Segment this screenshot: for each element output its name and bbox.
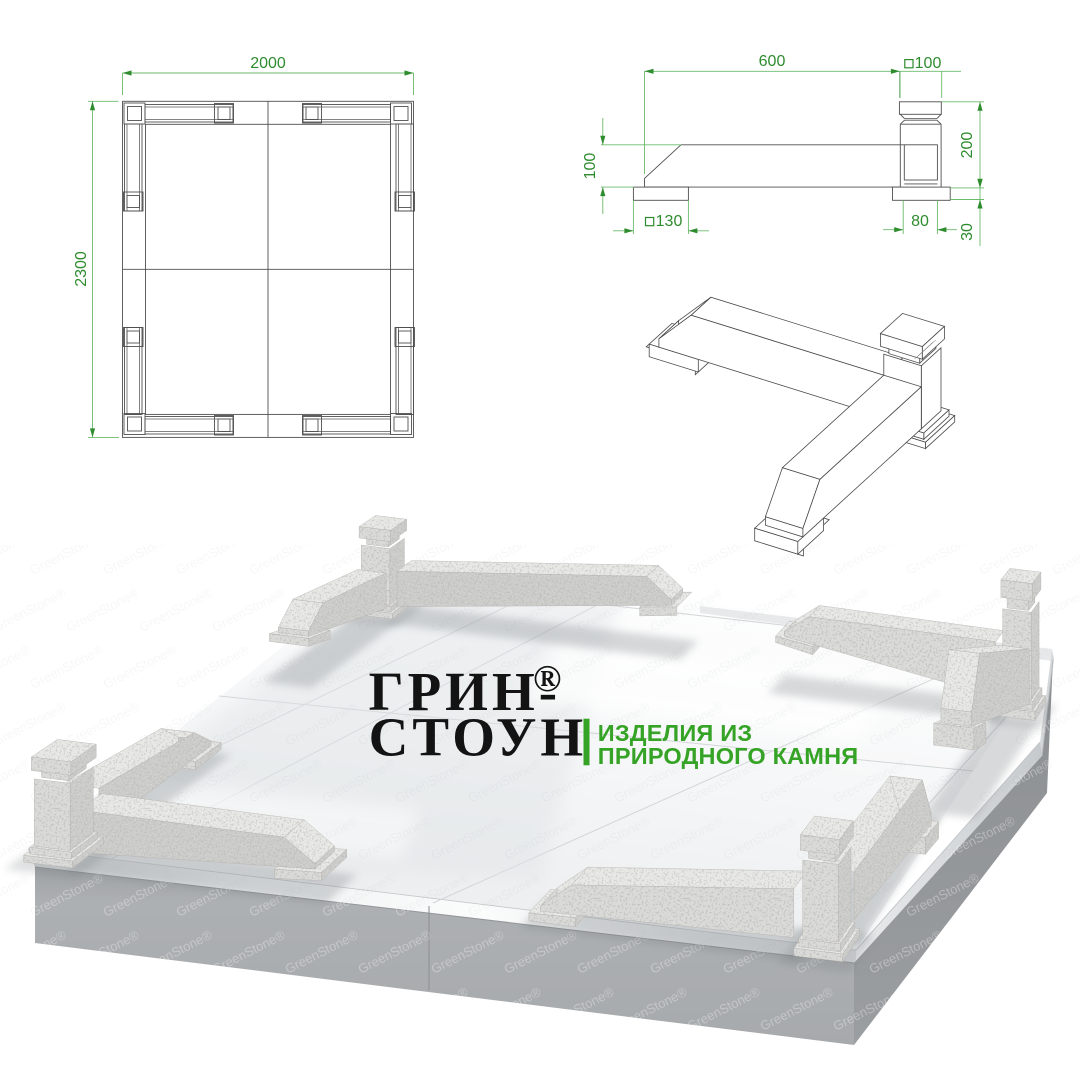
- svg-text:®: ®: [533, 658, 561, 700]
- svg-text:80: 80: [911, 213, 929, 230]
- svg-text:ПРИРОДНОГО КАМНЯ: ПРИРОДНОГО КАМНЯ: [598, 743, 859, 769]
- svg-text:100: 100: [915, 55, 942, 72]
- svg-text:200: 200: [959, 132, 976, 159]
- svg-text:2000: 2000: [250, 55, 286, 72]
- svg-text:СТОУН: СТОУН: [369, 707, 588, 768]
- svg-text:30: 30: [959, 223, 976, 241]
- svg-text:100: 100: [582, 153, 599, 180]
- svg-text:130: 130: [656, 213, 683, 230]
- svg-text:2300: 2300: [73, 251, 90, 287]
- svg-text:600: 600: [759, 53, 786, 70]
